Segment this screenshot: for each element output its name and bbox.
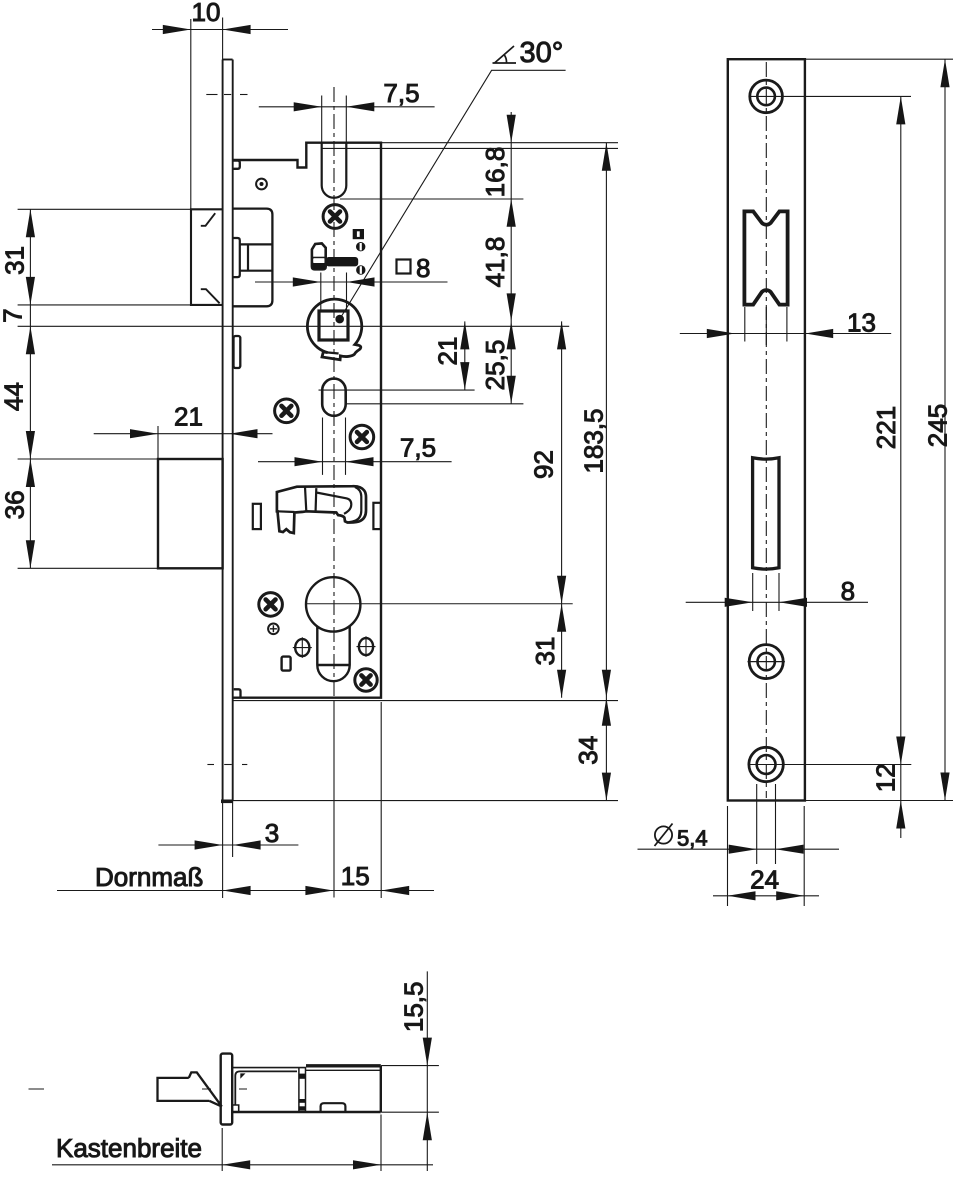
svg-text:Kastenbreite: Kastenbreite [56, 1133, 202, 1163]
svg-text:31: 31 [530, 637, 560, 666]
svg-text:15,5: 15,5 [399, 981, 429, 1032]
svg-text:36: 36 [0, 490, 29, 519]
svg-text:245: 245 [922, 404, 952, 447]
svg-text:15: 15 [341, 861, 370, 891]
svg-text:30°: 30° [520, 37, 564, 69]
svg-text:7,5: 7,5 [383, 78, 419, 108]
svg-text:221: 221 [871, 406, 901, 449]
svg-text:31: 31 [0, 246, 29, 275]
svg-text:12: 12 [870, 763, 900, 792]
svg-text:25,5: 25,5 [480, 340, 510, 391]
svg-text:3: 3 [265, 818, 279, 848]
svg-text:44: 44 [0, 382, 29, 411]
svg-text:21: 21 [432, 337, 462, 366]
svg-text:Dornmaß: Dornmaß [95, 862, 203, 892]
svg-text:7: 7 [0, 308, 28, 322]
svg-text:16,8: 16,8 [480, 147, 510, 198]
svg-text:24: 24 [750, 865, 779, 895]
svg-text:183,5: 183,5 [579, 408, 609, 473]
svg-text:8: 8 [841, 576, 855, 606]
svg-text:10: 10 [192, 0, 221, 27]
svg-text:92: 92 [529, 450, 559, 479]
svg-text:7,5: 7,5 [400, 433, 436, 463]
svg-text:21: 21 [174, 402, 203, 432]
svg-text:13: 13 [847, 308, 876, 338]
svg-text:8: 8 [416, 253, 430, 283]
svg-text:41,8: 41,8 [480, 237, 510, 288]
svg-text:5,4: 5,4 [677, 826, 708, 851]
svg-text:34: 34 [573, 736, 603, 765]
